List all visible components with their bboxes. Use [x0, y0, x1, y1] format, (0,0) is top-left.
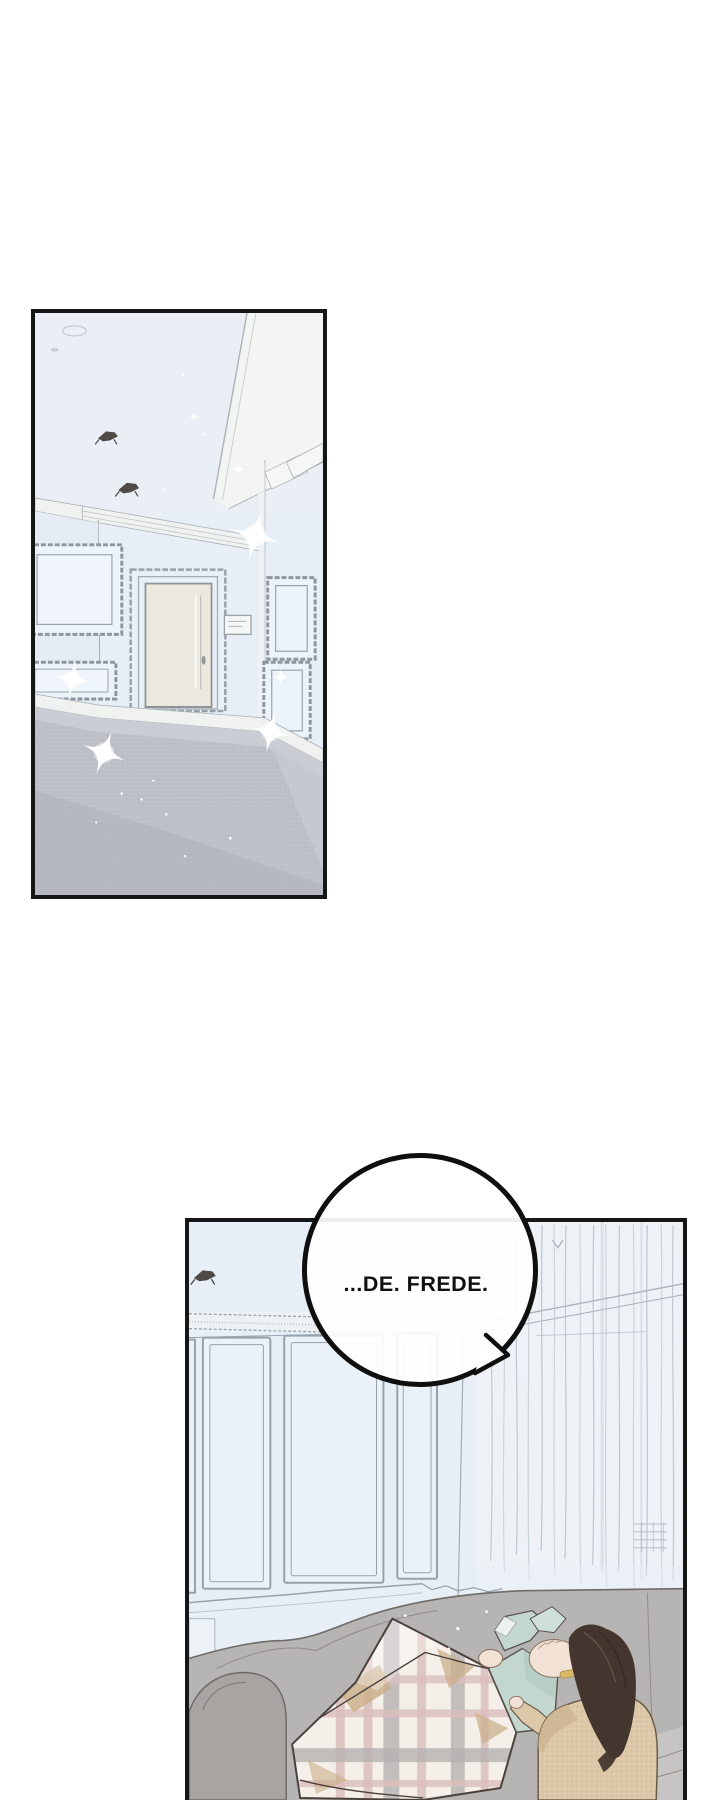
speech-bubble-shape: ...DE. FREDE.	[292, 1140, 552, 1396]
panel-empty-room	[31, 309, 327, 899]
speech-text: ...DE. FREDE.	[343, 1272, 488, 1296]
hand	[479, 1650, 503, 1668]
couch-armrest	[189, 1672, 286, 1800]
hand	[509, 1696, 523, 1708]
wall-plaque	[224, 615, 251, 634]
empty-room-illustration	[35, 313, 323, 895]
door	[131, 570, 226, 711]
door-handle	[202, 656, 206, 665]
speech-bubble: ...DE. FREDE.	[292, 1140, 552, 1396]
webtoon-page: ...DE. FREDE.	[0, 0, 720, 1800]
